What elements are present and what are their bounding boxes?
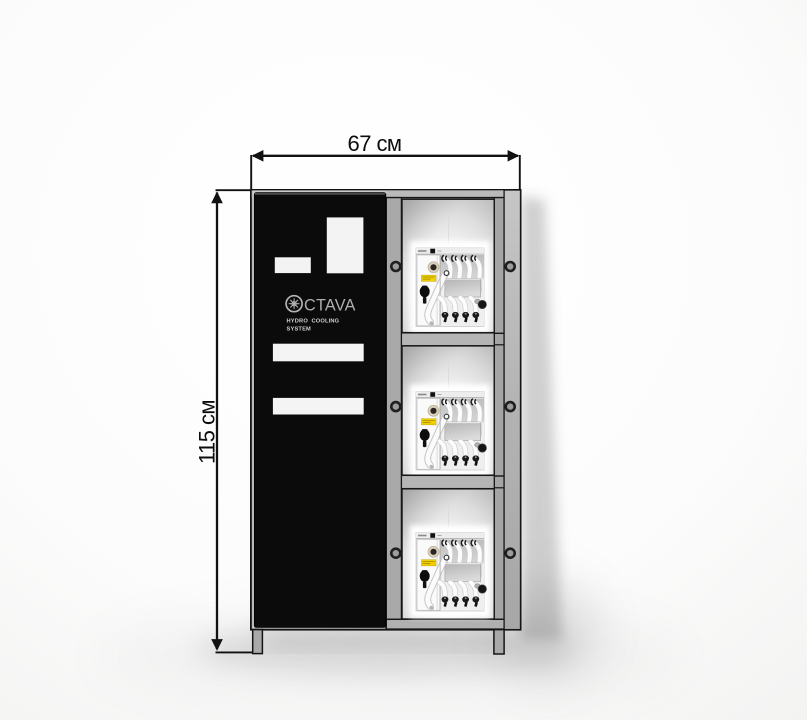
- svg-text:115 см: 115 см: [195, 400, 220, 464]
- svg-text:67 см: 67 см: [348, 131, 402, 156]
- svg-text:HYDRO COOLING: HYDRO COOLING: [287, 318, 340, 324]
- svg-text:SYSTEM: SYSTEM: [287, 326, 312, 332]
- svg-text:CTAVA: CTAVA: [304, 297, 356, 315]
